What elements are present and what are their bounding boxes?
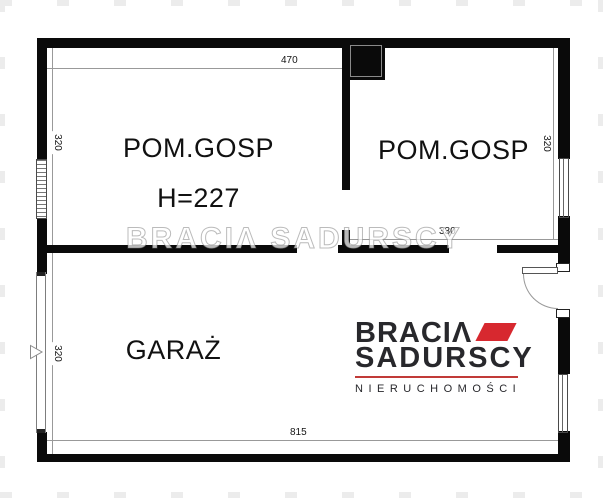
wall-middle-right-segment bbox=[497, 245, 558, 253]
window-right-garage bbox=[558, 374, 568, 433]
wall-left-middle bbox=[37, 217, 47, 274]
chimney-inner-outline bbox=[350, 45, 382, 77]
window-left-top bbox=[36, 159, 47, 219]
agency-logo: BRACIΛ SADURSCY NIERUCHOMOŚCI bbox=[355, 321, 534, 395]
logo-red-flag-icon bbox=[476, 323, 517, 341]
room-height-note: H=227 bbox=[116, 184, 281, 212]
edge-pattern-right bbox=[598, 0, 603, 500]
edge-pattern-bottom bbox=[0, 492, 604, 498]
logo-text-nieruchomosci: NIERUCHOMOŚCI bbox=[355, 383, 534, 395]
dimension-label-320-right-top: 320 bbox=[541, 132, 552, 155]
dimension-label-815: 815 bbox=[287, 427, 310, 438]
dimension-line-815 bbox=[47, 440, 558, 441]
wall-right-middle bbox=[558, 216, 570, 265]
chimney-block bbox=[347, 42, 385, 80]
room-label-garage: GARAŻ bbox=[91, 336, 256, 364]
logo-red-rule bbox=[355, 376, 518, 378]
wall-left-upper bbox=[37, 38, 47, 160]
dimension-line-right-320 bbox=[553, 48, 554, 239]
edge-pattern-top bbox=[0, 0, 604, 6]
garage-gate-cap-bottom bbox=[37, 429, 45, 433]
wall-right-upper bbox=[558, 38, 570, 159]
wall-right-lower bbox=[558, 317, 570, 374]
edge-pattern-left bbox=[0, 0, 5, 500]
door-jamb-top bbox=[556, 263, 570, 272]
room-label-pom-gosp-left: POM.GOSP bbox=[116, 134, 281, 162]
door-swing-arc bbox=[523, 274, 558, 309]
floor-plan: 470 320 320 330 320 815 POM.GOSP H=227 P… bbox=[0, 0, 604, 500]
wall-top bbox=[37, 38, 570, 48]
wall-bottom bbox=[37, 454, 570, 462]
wall-left-lower bbox=[37, 432, 47, 462]
logo-text-sadurscy: SADURSCY bbox=[355, 346, 534, 370]
door-leaf bbox=[522, 267, 558, 274]
dimension-label-320-left-top: 320 bbox=[52, 131, 63, 154]
garage-gate-cap-top bbox=[37, 272, 45, 276]
gate-direction-triangle-icon bbox=[29, 344, 44, 360]
dimension-label-320-garage: 320 bbox=[52, 342, 63, 365]
wall-right-corner bbox=[558, 431, 570, 462]
window-right-top bbox=[559, 158, 569, 218]
dimension-label-470: 470 bbox=[278, 55, 301, 66]
room-label-pom-gosp-right: POM.GOSP bbox=[371, 136, 536, 164]
dimension-line-470 bbox=[47, 68, 347, 69]
door-jamb-bottom bbox=[556, 309, 570, 318]
watermark-text: BRACIΛ SADURSCY bbox=[126, 222, 463, 256]
